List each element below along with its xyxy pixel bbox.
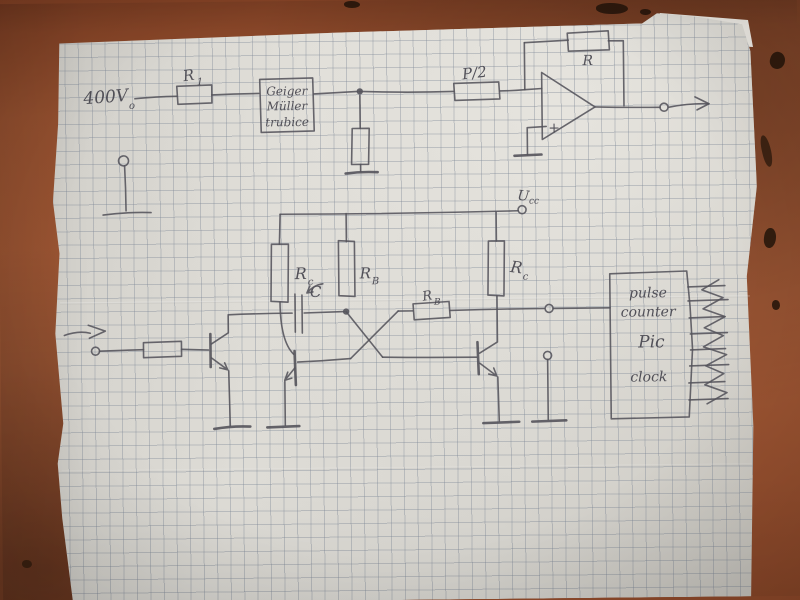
resistor-p2: [454, 82, 500, 100]
wire: [212, 93, 259, 94]
ground-terminal: [544, 351, 552, 359]
ucc-terminal: [518, 206, 526, 214]
ground-symbol: [346, 172, 378, 174]
ground-symbol: [214, 426, 250, 429]
wire: [304, 312, 344, 313]
input-arrow: [64, 332, 90, 335]
hv-supply-section: 400V o R 1: [81, 65, 259, 112]
diagonal-wire: [350, 311, 398, 359]
ground-symbol: [532, 420, 566, 421]
probe-base: [103, 212, 151, 215]
vcc-rail: U cc: [279, 188, 540, 245]
pin-zigzag: [702, 280, 727, 404]
q3-base-bar: [477, 342, 478, 374]
divider-and-opamp: P/2 R +: [453, 30, 709, 157]
noninverting-input-wire: [527, 126, 546, 154]
counter-pin: [689, 317, 724, 318]
cross-coupling: R B: [297, 287, 611, 363]
output-terminal: [545, 304, 553, 312]
rc-right-label: R: [508, 257, 523, 278]
ground-symbol: [514, 155, 541, 156]
resistor-rb-coupling: [413, 301, 450, 319]
rc-right-label-sub: c: [523, 272, 529, 283]
wire: [548, 359, 549, 419]
feedback-wire: [524, 40, 568, 42]
resistor-r1: [177, 85, 212, 104]
supply-voltage-sub: o: [129, 101, 135, 112]
output-wire: [595, 106, 660, 108]
input-stage: [64, 316, 250, 431]
supply-voltage-label: 400V: [82, 86, 131, 110]
gm-box-line2: Müller: [266, 99, 309, 113]
resistor-rc-left: [270, 244, 289, 302]
counter-pin: [690, 333, 727, 334]
probe-symbol: [102, 156, 151, 215]
rb-coupling-label-sub: B: [433, 298, 441, 308]
wire: [228, 313, 292, 315]
counter-line1: pulse: [629, 285, 667, 301]
pulldown-resistor: [351, 128, 369, 164]
wire: [383, 356, 477, 358]
r1-label: R: [181, 66, 196, 86]
ground-symbol: [267, 426, 299, 427]
rb-top-label: R: [359, 264, 371, 282]
wire: [229, 371, 231, 426]
q3-collector: [479, 296, 498, 353]
tube-output-node: [314, 87, 455, 174]
feedback-resistor: [567, 31, 609, 51]
inverting-input-wire: [525, 89, 542, 90]
q3-emitter: [480, 363, 497, 376]
q2-emitter: [285, 368, 295, 380]
diagonal-wire: [346, 311, 382, 357]
wire: [182, 349, 209, 350]
gm-box-line1: Geiger: [266, 84, 308, 98]
rb-top-label-sub: B: [371, 276, 379, 287]
wire: [500, 90, 525, 91]
probe-terminal: [118, 156, 128, 166]
counter-line3: Pic: [637, 332, 665, 352]
resistor-rb-top: [338, 240, 355, 296]
output-terminal: [660, 103, 668, 111]
wire: [553, 308, 610, 309]
input-arrowhead: [88, 325, 105, 338]
transistor-q2: [266, 302, 299, 427]
gm-box-line3: trubice: [265, 115, 309, 129]
wire: [498, 377, 499, 421]
rb-coupling-label: R: [420, 288, 433, 304]
wire: [298, 359, 351, 363]
circuit-schematic: 400V o R 1 Geiger Müller trubice: [0, 0, 800, 600]
feedback-r-label: R: [581, 53, 593, 69]
wire: [135, 96, 177, 98]
wire: [360, 90, 454, 92]
rail-wire: [280, 211, 518, 215]
wire: [100, 350, 144, 351]
wire: [314, 91, 358, 93]
resistor-rc-right: [487, 241, 505, 296]
ground-symbol: [483, 422, 519, 423]
q1-emitter: [212, 358, 228, 370]
noninverting-plus-sign: +: [548, 120, 560, 136]
p2-label: P/2: [460, 63, 488, 84]
counter-line2: counter: [621, 304, 677, 321]
pulse-counter-box: pulse counter Pic clock: [610, 271, 730, 419]
wire: [279, 214, 280, 244]
wire: [280, 302, 294, 354]
geiger-tube-box: Geiger Müller trubice: [260, 78, 315, 133]
counter-pin: [688, 300, 728, 301]
ucc-label-sub: cc: [529, 197, 539, 207]
counter-pin: [689, 399, 728, 400]
photo-of-hand-drawn-circuit: 400V o R 1 Geiger Müller trubice: [0, 0, 800, 600]
r1-label-sub: 1: [197, 77, 203, 88]
rc-left-label: R: [294, 264, 307, 283]
transistor-q3: [477, 295, 566, 423]
input-terminal: [91, 347, 99, 355]
probe-wire: [125, 166, 126, 211]
coupling-capacitor: C: [228, 283, 345, 334]
counter-line4: clock: [630, 369, 667, 385]
feedback-wire: [608, 41, 624, 106]
q1-collector: [211, 316, 228, 344]
input-resistor: [143, 341, 181, 357]
